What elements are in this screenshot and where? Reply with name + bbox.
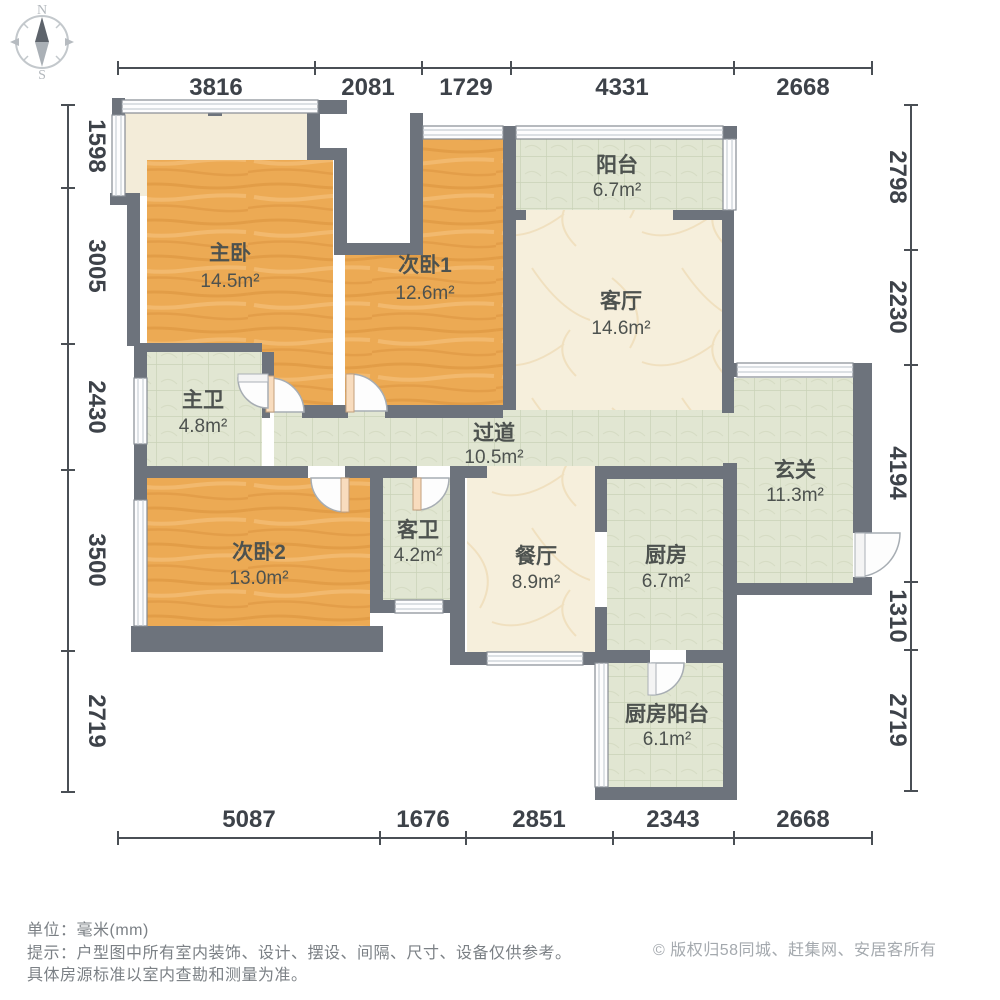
compass-icon: N S	[10, 3, 74, 83]
dim-right-2: 2230	[884, 280, 911, 333]
dim-right-4: 1310	[884, 589, 911, 642]
wall	[723, 463, 737, 583]
room-label-master-bedroom: 主卧	[209, 242, 251, 265]
wall	[140, 343, 262, 352]
wall	[853, 377, 872, 533]
floor-plan-page: 主卧 14.5m² 次卧1 12.6m² 阳台 6.7m² 客厅 14.6m² …	[0, 0, 1000, 1000]
dim-right-1: 2798	[884, 150, 911, 203]
window-kitchen-balcony-left	[595, 663, 608, 787]
window-balcony-top	[516, 126, 723, 139]
wall	[673, 210, 734, 220]
wall	[385, 405, 503, 418]
room-label-bedroom-1: 次卧1	[398, 253, 452, 277]
footer-copyright: © 版权归58同城、赶集网、安居客所有	[653, 936, 937, 960]
room-label-living-room: 客厅	[600, 289, 642, 313]
compass-south-label: S	[38, 68, 46, 83]
wall	[383, 466, 417, 478]
dim-top-2: 2081	[341, 74, 394, 101]
room-area-bedroom-1: 12.6m²	[395, 283, 454, 304]
wall	[383, 600, 395, 613]
dim-bottom-5: 2668	[776, 806, 829, 833]
wall	[510, 210, 526, 220]
dim-left-4: 3500	[83, 533, 110, 586]
wall	[302, 405, 348, 418]
window-bay-left	[112, 115, 125, 196]
dim-bottom-2: 1676	[396, 806, 449, 833]
window-bedroom-1-top	[423, 126, 503, 139]
wall	[334, 148, 347, 255]
dim-right-3: 4194	[884, 446, 911, 500]
room-area-balcony: 6.7m²	[593, 180, 642, 201]
window-master-bath-left	[134, 378, 147, 444]
room-area-master-bedroom: 14.5m²	[200, 271, 259, 292]
dim-bottom-3: 2851	[512, 806, 565, 833]
room-area-kitchen-balcony: 6.1m²	[643, 729, 692, 750]
dimension-bottom: 5087 1676 2851 2343 2668	[118, 806, 872, 845]
dim-top-3: 1729	[439, 74, 492, 101]
room-label-bedroom-2: 次卧2	[232, 540, 286, 564]
wall	[723, 126, 737, 139]
room-label-kitchen-balcony: 厨房阳台	[625, 702, 709, 726]
room-area-dining-room: 8.9m²	[512, 572, 561, 593]
wall	[370, 466, 383, 613]
dim-left-5: 2719	[83, 694, 110, 747]
wall	[853, 363, 872, 377]
dim-right-5: 2719	[884, 693, 911, 746]
door-entry	[855, 533, 900, 577]
wall	[131, 626, 383, 652]
wall	[134, 345, 147, 378]
window-dining-bottom	[487, 652, 583, 665]
wall	[722, 210, 734, 363]
wall	[737, 583, 872, 595]
room-area-bedroom-2: 13.0m²	[229, 568, 288, 589]
dimension-right: 2798 2230 4194 1310 2719	[884, 105, 918, 791]
wall	[134, 466, 308, 478]
wall	[127, 196, 140, 346]
wall	[595, 479, 607, 532]
window-bedroom-2-left	[134, 500, 147, 626]
dim-top-4: 4331	[595, 74, 648, 101]
dim-bottom-4: 2343	[646, 806, 699, 833]
room-area-kitchen: 6.7m²	[642, 571, 691, 592]
wall	[410, 113, 423, 255]
dim-left-2: 3005	[83, 239, 110, 292]
room-label-hallway: 过道	[473, 421, 515, 445]
room-area-guest-bath: 4.2m²	[394, 545, 443, 566]
window-foyer-top	[737, 363, 853, 377]
wall	[722, 377, 734, 413]
room-label-balcony: 阳台	[596, 153, 638, 177]
wall	[307, 113, 320, 160]
dimension-top: 3816 2081 1729 4331 2668	[118, 61, 872, 101]
wall	[723, 583, 737, 800]
dim-bottom-1: 5087	[222, 806, 275, 833]
footer-tip-line2: 具体房源标准以室内查勘和测量为准。	[27, 961, 308, 985]
window-balcony-right	[723, 139, 736, 210]
room-area-foyer: 11.3m²	[766, 485, 824, 506]
window-bay-top	[122, 100, 318, 113]
wall	[503, 126, 516, 410]
wall	[595, 466, 737, 479]
dim-left-3: 2430	[83, 380, 110, 433]
floor-plan-svg: 主卧 14.5m² 次卧1 12.6m² 阳台 6.7m² 客厅 14.6m² …	[0, 0, 1000, 1000]
dim-top-1: 3816	[189, 74, 242, 101]
dim-left-1: 1598	[83, 119, 110, 172]
dimension-left: 1598 3005 2430 3500 2719	[61, 105, 110, 792]
wall	[443, 600, 455, 613]
room-label-master-bath: 主卫	[182, 389, 224, 412]
wall	[722, 363, 737, 377]
wall	[450, 466, 465, 665]
wall	[595, 787, 737, 800]
window-guest-bath-bottom	[395, 600, 443, 613]
wall	[595, 607, 607, 650]
footer-unit-line: 单位：毫米(mm)	[27, 916, 149, 940]
room-area-hallway: 10.5m²	[464, 447, 523, 468]
wall	[134, 478, 147, 500]
room-label-guest-bath: 客卫	[397, 518, 439, 542]
room-area-master-bath: 4.8m²	[179, 416, 228, 437]
room-area-living-room: 14.6m²	[591, 318, 650, 339]
compass-north-label: N	[37, 3, 47, 18]
room-label-dining-room: 餐厅	[515, 544, 557, 568]
wall	[595, 650, 650, 663]
room-label-kitchen: 厨房	[645, 543, 687, 567]
footer-tip-line: 提示：户型图中所有室内装饰、设计、摆设、间隔、尺寸、设备仅供参考。	[27, 939, 572, 963]
wall	[455, 652, 487, 665]
room-label-foyer: 玄关	[774, 458, 816, 482]
wall	[345, 466, 370, 478]
dim-top-5: 2668	[776, 74, 829, 101]
